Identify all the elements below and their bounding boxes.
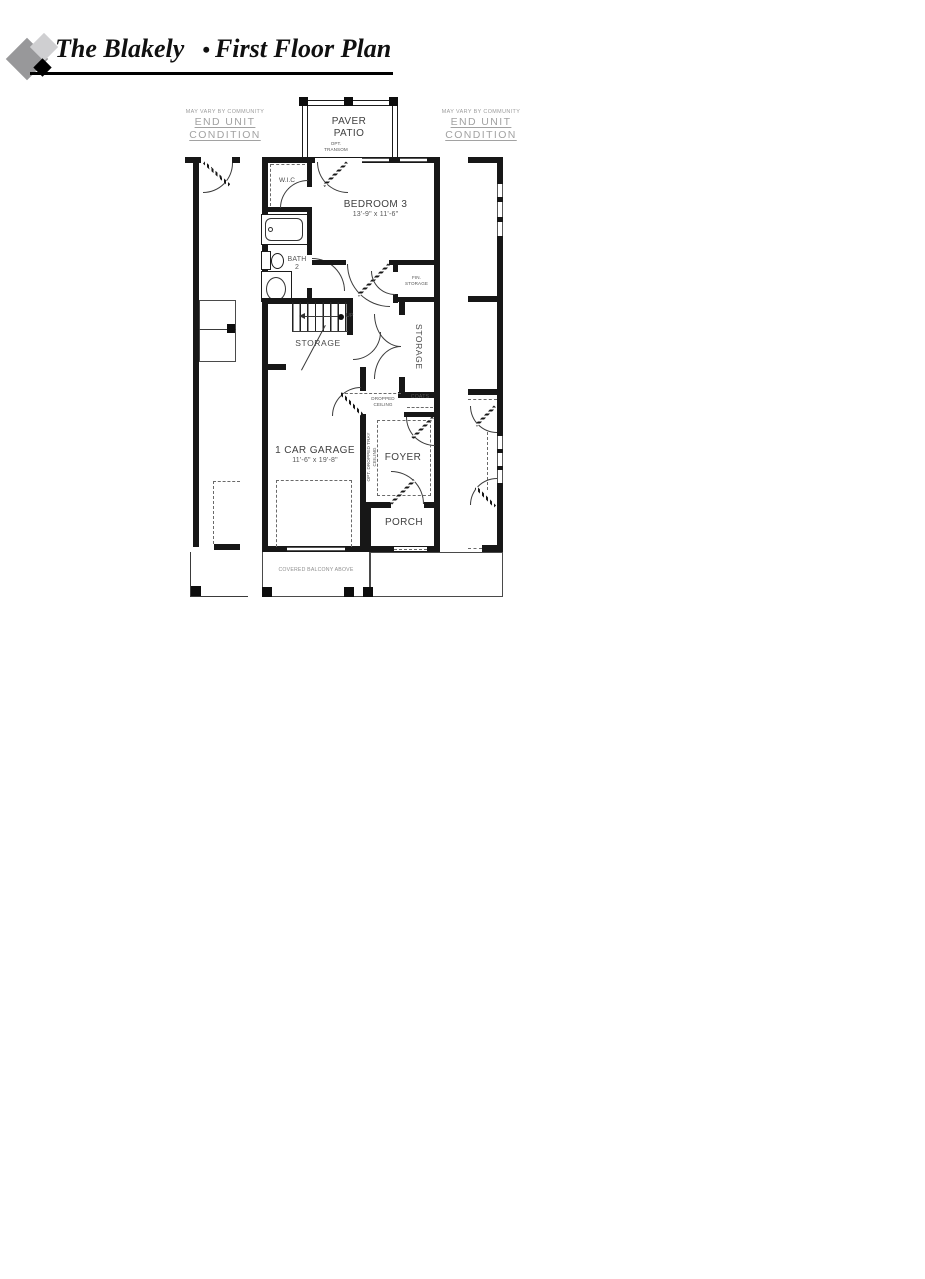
end-unit-window [497, 436, 503, 449]
title-underline [30, 72, 393, 75]
room-dims: 13'-9" x 11'-6" [328, 211, 423, 219]
bath-wall [307, 207, 312, 255]
note-small: MAY VARY BY COMMUNITY [181, 109, 269, 115]
wall-right [434, 157, 440, 552]
end-unit-balcony-line [190, 596, 248, 597]
closet-wall [399, 297, 405, 315]
patio-post [344, 97, 353, 106]
porch-opening-dashed [394, 549, 427, 550]
room-label-storage-closet: STORAGE [411, 316, 427, 378]
end-unit-note-left: MAY VARY BY COMMUNITY END UNIT CONDITION [181, 109, 269, 141]
stairs-up-dot [338, 314, 344, 320]
room-label-wic: W.I.C [270, 177, 304, 185]
room-label-porch: PORCH [373, 517, 435, 529]
understair-door-arc [353, 332, 381, 360]
end-unit-dashed [468, 399, 497, 400]
wic-shelf-dashed [271, 164, 305, 165]
garage-door-opening [287, 547, 345, 551]
title-bullet: • [202, 37, 210, 62]
label-line: TRANSOM [318, 147, 354, 153]
patio-railing [302, 100, 308, 158]
porch-lower-outline [370, 552, 503, 597]
dropped-ceiling-label: DROPPED CEILING [366, 396, 400, 407]
floor-plan-page: The Blakely•First Floor Plan MAY VARY BY… [0, 0, 925, 1279]
end-unit-note-right: MAY VARY BY COMMUNITY END UNIT CONDITION [437, 109, 525, 141]
opt-transom-label: OPT. TRANSOM [318, 141, 354, 152]
room-label-garage: 1 CAR GARAGE 11'-6" x 19'-8" [264, 445, 366, 465]
porch-wall [365, 502, 371, 552]
room-name: BEDROOM 3 [328, 199, 423, 211]
end-unit-window [497, 184, 503, 197]
end-unit-wall [232, 157, 240, 163]
garage-apron-dashed-box [276, 480, 352, 547]
label-line: DROPPED [366, 396, 400, 402]
note-line2: CONDITION [437, 129, 525, 141]
note-line2: CONDITION [181, 129, 269, 141]
wic-shelf-dashed [270, 164, 271, 206]
stairs-up-arrow [304, 316, 340, 317]
note-line1: END UNIT [437, 116, 525, 128]
balcony-post [363, 587, 373, 597]
balcony-post [191, 586, 201, 596]
porch-wall [424, 502, 434, 508]
note-line1: END UNIT [181, 116, 269, 128]
end-unit-window [497, 470, 503, 483]
end-unit-window [497, 202, 503, 217]
end-unit-door-arc [470, 478, 497, 505]
note-small: MAY VARY BY COMMUNITY [437, 109, 525, 115]
label-line: CEILING [366, 402, 400, 408]
opt-tray-ceiling-label: OPT. DROPPED TRAY CEILING [366, 426, 376, 488]
room-label-bedroom3: BEDROOM 3 13'-9" x 11'-6" [328, 199, 423, 219]
end-unit-dashed [213, 481, 240, 482]
page-title: The Blakely•First Floor Plan [55, 34, 391, 64]
room-name: PATIO [319, 128, 379, 140]
coats-label: COATS [405, 394, 435, 400]
end-unit-window [497, 222, 503, 236]
bathtub-drain [268, 227, 273, 232]
stairs-up-arrowhead-icon [299, 313, 305, 319]
covered-balcony-label: COVERED BALCONY ABOVE [267, 567, 365, 573]
bedroom-window [400, 158, 427, 162]
end-unit-wall [468, 157, 497, 163]
room-name: STORAGE [399, 281, 434, 287]
plan-subtitle: First Floor Plan [215, 34, 391, 63]
room-name: 2 [279, 264, 315, 272]
end-unit-wall [468, 389, 497, 395]
room-name: BATH [279, 256, 315, 264]
balcony-post [262, 587, 272, 597]
room-label-paver-patio: PAVER PATIO [319, 116, 379, 140]
closet-door-arc [374, 346, 401, 379]
end-unit-post [227, 324, 235, 333]
bedroom-wall [312, 260, 346, 265]
storage-wall [262, 364, 286, 370]
room-name: 1 CAR GARAGE [264, 445, 366, 457]
toilet-tank [261, 251, 271, 270]
room-dims: 11'-6" x 19'-8" [264, 457, 366, 465]
room-label-fin-storage: FIN. STORAGE [399, 275, 434, 286]
end-unit-window [497, 453, 503, 466]
patio-railing [392, 100, 398, 158]
room-name: STORAGE [414, 324, 424, 370]
end-unit-dashed [468, 548, 482, 549]
stairs-up-label: UP [346, 313, 360, 319]
patio-post [389, 97, 398, 106]
end-unit-wall [214, 544, 240, 550]
bedroom-window [362, 158, 389, 162]
room-label-foyer: FOYER [373, 452, 433, 464]
room-name: PAVER [319, 116, 379, 128]
room-label-bath2: BATH 2 [279, 256, 315, 273]
end-unit-wall [482, 545, 502, 552]
plan-name: The Blakely [55, 34, 184, 63]
end-unit-dashed [213, 481, 214, 544]
coats-dashed-line [407, 407, 433, 408]
balcony-post [344, 587, 354, 597]
patio-post [299, 97, 308, 106]
end-unit-wall [468, 296, 497, 302]
